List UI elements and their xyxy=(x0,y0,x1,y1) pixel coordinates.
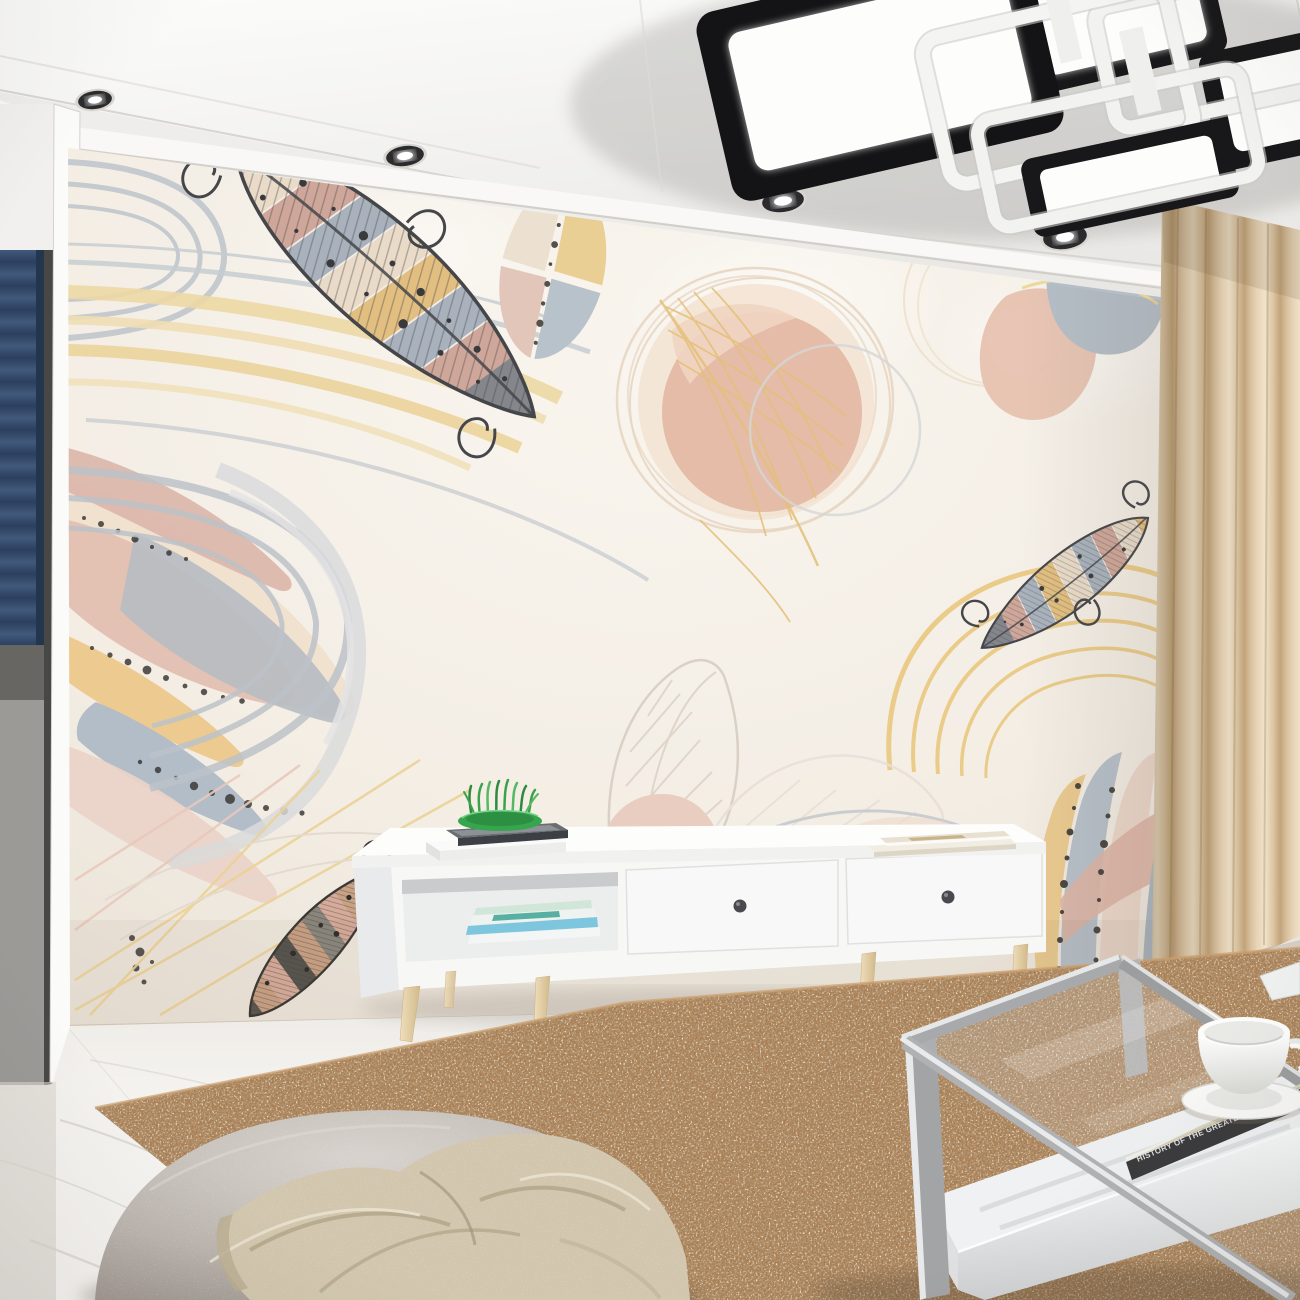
left-room-floor-shade xyxy=(0,1082,56,1300)
adjacent-room-left xyxy=(0,104,80,1088)
knob-highlight xyxy=(944,893,948,897)
left-room-shadow-band xyxy=(0,645,44,703)
drawer-left xyxy=(626,860,838,954)
left-room-wall-upper xyxy=(0,104,56,254)
left-room-wall-lower xyxy=(0,700,44,1085)
curtain xyxy=(1152,198,1300,976)
green-dish-inner xyxy=(466,812,534,826)
drawer-knob xyxy=(942,891,955,904)
living-room-scene: HISTORY OF THE GREATEST PLACES RICHARD H… xyxy=(0,0,1300,1300)
drawer-knob xyxy=(734,900,747,913)
living-room-photo: HISTORY OF THE GREATEST PLACES RICHARD H… xyxy=(0,0,1300,1300)
knob-highlight xyxy=(736,902,740,906)
